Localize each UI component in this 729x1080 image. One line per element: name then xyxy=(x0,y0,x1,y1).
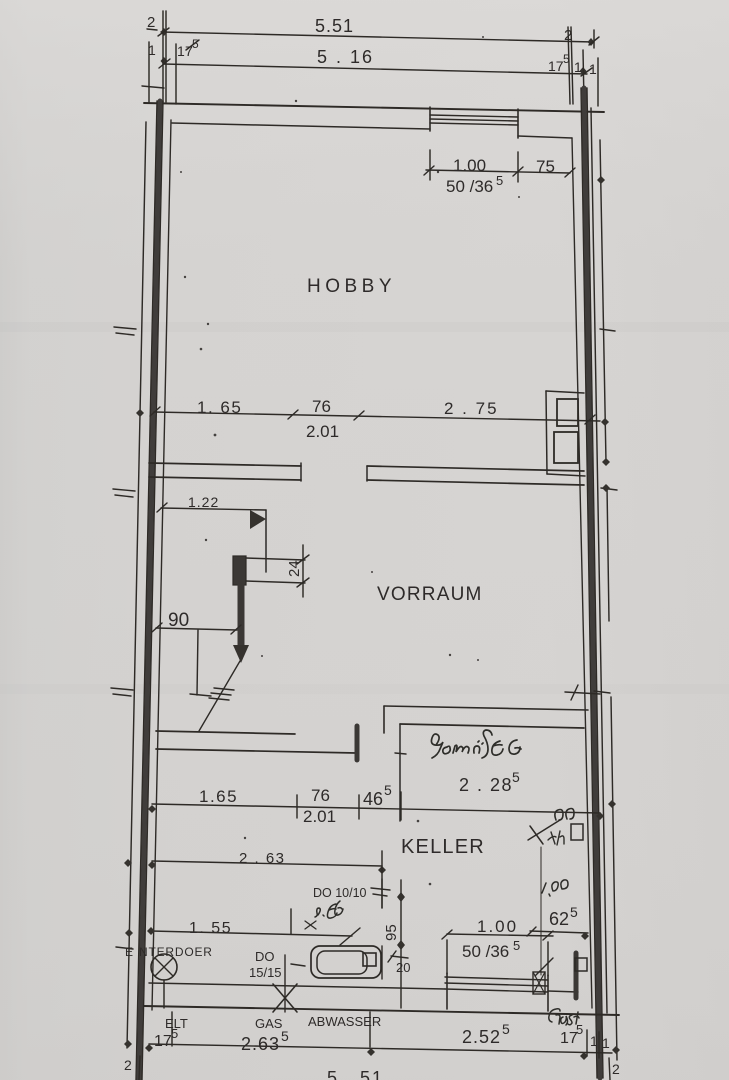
svg-text:1: 1 xyxy=(177,43,185,59)
svg-text:5 . 51: 5 . 51 xyxy=(327,1068,384,1080)
svg-text:5: 5 xyxy=(384,782,392,798)
svg-text:2.01: 2.01 xyxy=(303,807,336,826)
svg-text:E: E xyxy=(125,945,133,959)
svg-text:5: 5 xyxy=(281,1028,289,1044)
svg-text:2.63: 2.63 xyxy=(241,1034,280,1054)
svg-text:5: 5 xyxy=(570,904,578,920)
svg-text:5: 5 xyxy=(512,769,520,785)
svg-text:1: 1 xyxy=(590,1033,598,1049)
svg-text:50 /36: 50 /36 xyxy=(446,177,493,196)
svg-text:DO: DO xyxy=(255,949,275,964)
svg-text:1. 65: 1. 65 xyxy=(197,398,242,417)
svg-text:2 . 28: 2 . 28 xyxy=(459,775,513,795)
svg-text:15/15: 15/15 xyxy=(249,965,282,980)
svg-text:17: 17 xyxy=(548,58,564,74)
svg-text:1. 55: 1. 55 xyxy=(189,920,232,937)
svg-text:1: 1 xyxy=(589,61,597,77)
svg-text:5 . 16: 5 . 16 xyxy=(317,47,374,67)
svg-text:1: 1 xyxy=(574,59,582,75)
svg-text:90: 90 xyxy=(168,610,189,631)
svg-text:76: 76 xyxy=(311,786,330,805)
svg-text:2: 2 xyxy=(124,1057,132,1073)
svg-text:ABWASSER: ABWASSER xyxy=(308,1014,381,1029)
svg-text:5: 5 xyxy=(513,938,520,953)
svg-text:2 . 75: 2 . 75 xyxy=(444,399,499,418)
svg-text:2.01: 2.01 xyxy=(306,422,339,441)
svg-text:VORRAUM: VORRAUM xyxy=(377,584,483,605)
svg-text:5.51: 5.51 xyxy=(315,16,354,36)
svg-text:1.00: 1.00 xyxy=(453,156,486,175)
svg-text:95: 95 xyxy=(383,924,400,941)
svg-text:1.00: 1.00 xyxy=(477,917,518,936)
svg-text:NTERDOER: NTERDOER xyxy=(139,945,213,959)
svg-text:5: 5 xyxy=(502,1021,510,1037)
svg-text:KELLER: KELLER xyxy=(401,836,485,858)
svg-text:5: 5 xyxy=(576,1022,583,1037)
svg-text:5: 5 xyxy=(171,1026,178,1041)
svg-text:DO 10/10: DO 10/10 xyxy=(313,886,367,900)
svg-text:2 . 63: 2 . 63 xyxy=(239,850,286,867)
svg-text:HOBBY: HOBBY xyxy=(307,276,396,297)
svg-text:24: 24 xyxy=(286,560,303,577)
svg-text:17: 17 xyxy=(154,1033,172,1050)
svg-text:76: 76 xyxy=(312,397,331,416)
svg-text:5: 5 xyxy=(496,173,503,188)
svg-text:46: 46 xyxy=(363,789,383,809)
svg-text:1.65: 1.65 xyxy=(199,787,238,806)
svg-text:75: 75 xyxy=(536,157,555,176)
svg-text:20: 20 xyxy=(396,960,410,975)
svg-text:1.22: 1.22 xyxy=(188,494,219,510)
svg-text:GAS: GAS xyxy=(255,1016,283,1031)
svg-text:1: 1 xyxy=(602,1035,610,1051)
svg-text:2: 2 xyxy=(612,1061,620,1077)
svg-text:62: 62 xyxy=(549,909,569,929)
svg-text:50 /36: 50 /36 xyxy=(462,942,509,961)
svg-text:2.52: 2.52 xyxy=(462,1027,501,1047)
